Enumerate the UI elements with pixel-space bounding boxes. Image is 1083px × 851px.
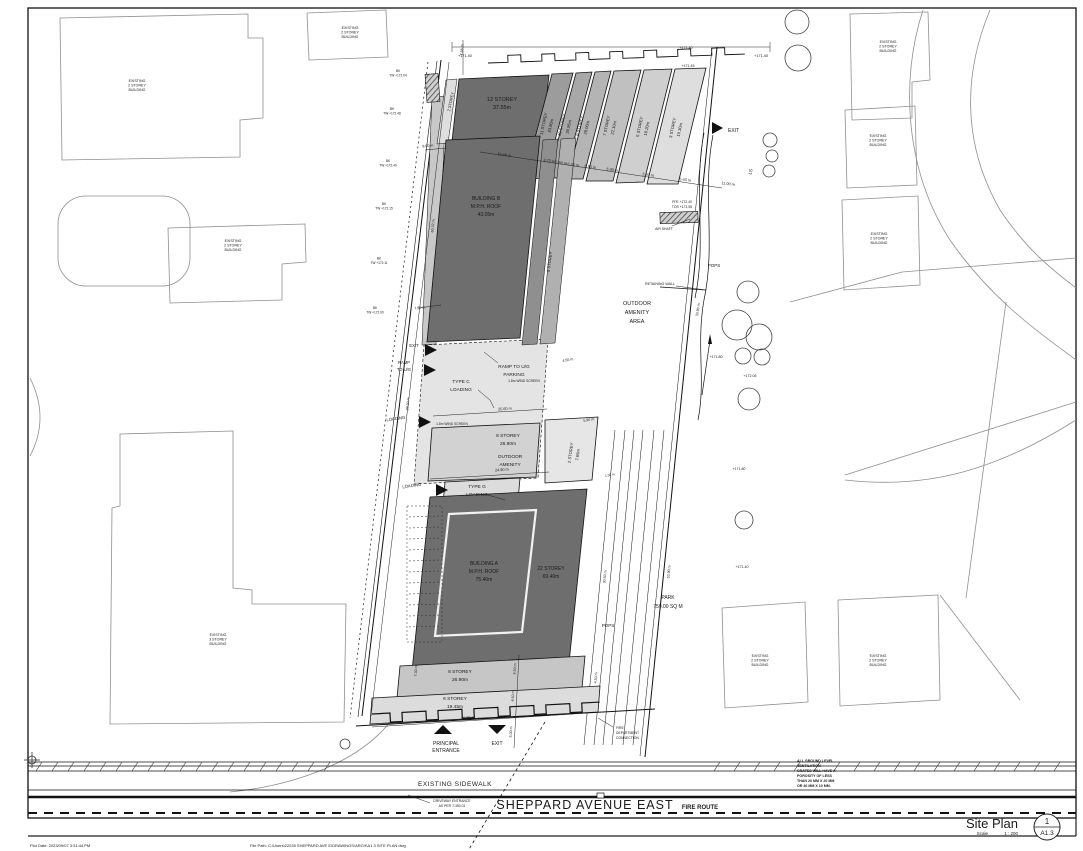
dim-text: 30.50 m [602,570,607,583]
existing-bldg-label: BUILDING [870,143,887,147]
existing-bldg-label: BUILDING [752,663,769,667]
existing-bldg-label: 2 STOREY [869,139,887,143]
existing-bldg-label: BUILDING [880,49,897,53]
bk-tag: TW +172.48 [383,112,401,116]
bk-tag: BK [396,69,401,73]
site-buildings [370,68,706,724]
existing-bldg-label: EXISTING [210,633,227,637]
bk-tag: BK [390,107,395,111]
label-pops-east: POPS [708,263,721,268]
label-outdoor-amenity-area1: OUTDOOR [623,301,651,307]
bk-tag: TW +172.15 [375,207,393,211]
label-building-a-roof: M.P.H. ROOF [469,569,499,575]
label-wind-screen1: 1.8m WIND SCREEN [508,379,540,383]
label-fire-dept2: DEPARTMENT [616,731,639,735]
label-type-g1: TYPE G [468,484,486,490]
existing-bldg-label: EXISTING [870,654,887,658]
label-ramp-to-ug1: RAMP [398,360,410,365]
note-line2: VENTILATION [797,764,821,768]
note-line5: THAN 20 MM X 20 MM [797,779,834,783]
label-8storey-south-h: 26.90m [452,677,468,683]
bk-tag: TW +172.11 [370,261,387,265]
label-12storey-h: 37.55m [493,105,512,111]
scale-value: 1 : 200 [1004,831,1018,836]
title-block: Site Plan Scale 1 : 200 1 A1.3 Plot Date… [30,814,1060,848]
label-principal2: ENTRANCE [432,748,460,754]
label-loading-west2: LOADING [402,482,421,490]
dim-text: 11.00 m [721,181,735,187]
existing-bldg-label: BUILDING [129,88,146,92]
exit-arrow [488,725,506,734]
elev-tag: +171.80 [709,355,722,359]
site-plan-drawing: 12 STOREY 37.55m 2 STOREY 11 STOREY 33.9… [0,0,1083,851]
label-tos: TOS +171.55 [672,205,692,209]
label-ramp-ug1: RAMP TO U/G [498,364,530,370]
label-ramp-to-ug2: TO U/G [397,367,411,372]
existing-bldg-label: BUILDING [210,642,227,646]
scale-label: Scale [977,831,989,836]
label-wind-screen2: 1.8m WIND SCREEN [436,422,468,426]
label-outdoor-amenity1: OUTDOOR [498,454,523,460]
label-6storey-south-h: 19.45m [447,704,463,710]
label-principal1: PRINCIPAL [433,741,459,747]
label-building-a: BUILDING A [470,561,499,567]
label-park-area: 759.00 SQ M [653,604,682,610]
road-lines [28,722,1076,851]
label-ramp-ug2: PARKING [503,372,525,378]
label-ls: LS [748,169,754,175]
label-sheppard-avenue: SHEPPARD AVENUE EAST [496,798,673,812]
label-8storey-south: 8 STOREY [448,669,472,675]
label-type-c1: TYPE C [452,379,470,385]
label-8storey-mid-h: 26.90m [500,441,516,447]
bk-tag: BK [386,159,391,163]
label-outdoor-amenity-area2: AMENITY [625,310,650,316]
elev-tag: +171.80 [732,467,745,471]
existing-bldg-label: EXISTING [342,26,359,30]
note-line3: GRATES WILL HAVE A [797,769,836,773]
detail-number: 1 [1045,817,1050,826]
bk-tag: BK [382,202,387,206]
dim-text: 5.00 m [509,726,514,737]
bk-tag: TW +172.00 [366,311,384,315]
label-exit-south: EXIT [491,741,502,747]
label-exit-top: EXIT [728,128,739,134]
label-22storey: 22 STOREY [537,566,565,572]
label-type-g2: LOADING [466,492,488,498]
existing-bldg-label: BUILDING [225,248,242,252]
vent-bar [425,74,440,103]
existing-bldg-label: 2 STOREY [879,45,897,49]
existing-bldg-label: EXISTING [871,232,888,236]
elev-tag: +171.40 [735,565,748,569]
label-building-b-h: 43.05m [478,212,495,218]
plot-stamp-right: File Path: C:\Users\22035 SHEPPARD AVE E… [250,843,406,848]
existing-bldg-label: BUILDING [871,241,888,245]
dim-text: 7.30 m [414,665,419,676]
bk-tag: TW +172.04 [389,74,407,78]
label-building-b: BUILDING B [472,196,501,202]
label-outdoor-amenity-area3: AREA [630,319,645,325]
label-ffe: FFE +172.40 [672,200,692,204]
existing-bldg-label: EXISTING [225,239,242,243]
existing-bldg-label: 2 STOREY [224,244,242,248]
label-12storey: 12 STOREY [487,97,517,103]
principal-entrance-arrow [434,725,452,734]
bk-tag: BK [377,257,382,261]
sheet-number: A1.3 [1040,830,1054,837]
label-driveway1: DRIVEWAY ENTRANCE [433,799,471,803]
label-retaining-wall: RETAINING WALL [645,282,675,286]
existing-bldg-label: 2 STOREY [751,659,769,663]
label-22storey-h: 69.40m [543,574,560,580]
elev-tag: +171.40 [754,54,768,58]
note-line1: ALL GROUND LEVEL [797,759,834,763]
label-8storey-mid: 8 STOREY [496,433,520,439]
label-building-b-roof: M.P.H. ROOF [471,204,501,210]
dim-text: 4.50 m [562,357,574,363]
elev-tag: +171.45 [681,64,694,68]
label-driveway2: AS PER T-350.01 [439,804,466,808]
existing-bldg-label: EXISTING [870,134,887,138]
existing-bldg-label: EXISTING [880,40,897,44]
label-air-shaft: AIR SHAFT [655,227,673,231]
dim-text: 53.90 m [666,565,671,578]
existing-bldg-label: 2 STOREY [128,84,146,88]
bk-tag: BK [373,306,378,310]
label-building-a-h: 75.40m [476,577,493,583]
existing-bldg-label: EXISTING [752,654,769,658]
dim-text: 4.50 m [513,663,518,674]
existing-bldg-label: 2 STOREY [869,659,887,663]
label-fire-route: FIRE ROUTE [682,805,718,811]
label-existing-sidewalk: EXISTING SIDEWALK [418,781,492,788]
label-park: PARK [661,595,675,601]
exit-top-arrow [712,122,723,134]
bk-tag: TW +172.40 [379,164,397,168]
existing-bldg-label: 2 STOREY [870,237,888,241]
plot-stamp-left: Plot Date: 2023/09/07 3:31:44 PM [30,843,90,848]
elev-tag: +172.05 [743,374,756,378]
label-fire-dept1: FIRE [616,726,624,730]
building-b [427,136,540,342]
note-line4: POROSITY OF LESS [797,774,832,778]
air-shaft-grate [660,211,698,223]
dim-text: 4.50 m [593,672,598,683]
dim-text: 1.50 m [605,472,616,478]
existing-bldg-label: 2 STOREY [341,31,359,35]
label-loading-west1: LOADING [386,415,405,423]
site-plan-sheet: 12 STOREY 37.55m 2 STOREY 11 STOREY 33.9… [0,0,1083,851]
label-type-c2: LOADING [450,387,472,393]
dim-text: 4.50 m [511,690,516,701]
label-pops-south: POPS [602,623,615,628]
road-hatch [36,762,1060,771]
label-6storey-south: 6 STOREY [443,696,467,702]
elev-tag: +171.40 [679,46,692,50]
existing-bldg-label: BUILDING [870,663,887,667]
existing-bldg-label: EXISTING [129,79,146,83]
dim-text: 23.30 m [405,397,410,410]
label-fire-dept3: CONNECTION [616,736,639,740]
sheet-title: Site Plan [966,816,1018,831]
label-exit-west: EXIT [409,343,419,348]
mid-8storey-area [428,423,540,481]
dim-text: 33.90 m [695,303,701,316]
note-line6: OR 40 MM X 10 MM. [797,784,831,788]
existing-bldg-label: 3 STOREY [209,638,227,642]
existing-bldg-label: BUILDING [342,35,359,39]
